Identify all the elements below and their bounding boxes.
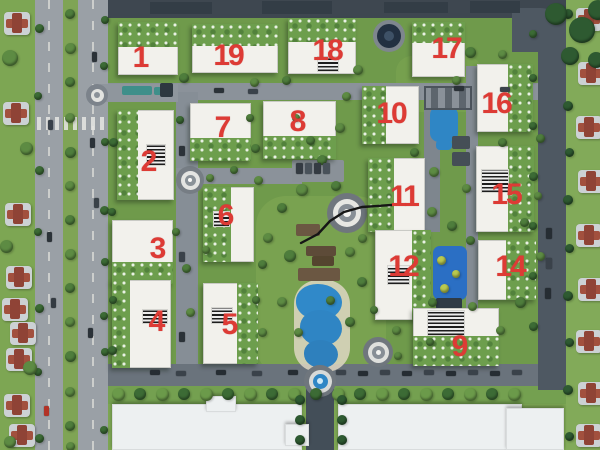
- car: [288, 370, 298, 375]
- tree: [254, 176, 263, 185]
- tree: [508, 388, 521, 401]
- tree: [101, 138, 109, 146]
- tree: [563, 291, 573, 301]
- car: [92, 52, 97, 62]
- tree: [294, 328, 303, 337]
- tree: [35, 304, 44, 313]
- tree: [452, 76, 461, 85]
- main-pool: [304, 340, 338, 368]
- villa: [578, 278, 600, 301]
- tree: [520, 218, 529, 227]
- tree: [65, 147, 76, 158]
- north-strip-building-shadow: [384, 2, 448, 13]
- building-label-6: 6: [218, 199, 233, 233]
- sports-court-grid: [424, 86, 472, 110]
- tree: [263, 233, 273, 243]
- car: [51, 298, 56, 308]
- tree: [354, 388, 366, 400]
- tree: [394, 352, 402, 360]
- tree: [536, 134, 545, 143]
- villa: [5, 203, 31, 226]
- car: [179, 146, 185, 156]
- tree: [246, 114, 254, 122]
- tree: [23, 361, 37, 375]
- tree: [230, 166, 238, 174]
- car: [468, 370, 478, 375]
- building-label-19: 19: [213, 39, 242, 73]
- tree: [186, 308, 195, 317]
- tree: [306, 136, 315, 145]
- tree: [100, 312, 108, 320]
- tree: [35, 434, 44, 443]
- tree: [252, 296, 260, 304]
- north-amenity-pool: [436, 140, 452, 150]
- tree: [353, 65, 363, 75]
- villa: [576, 224, 600, 247]
- tree: [172, 228, 180, 236]
- car: [216, 370, 226, 375]
- car: [512, 370, 522, 375]
- villa: [576, 330, 600, 353]
- tree: [342, 92, 351, 101]
- tree: [462, 184, 471, 193]
- tree: [529, 122, 537, 130]
- tree: [561, 47, 579, 65]
- tree: [563, 101, 573, 111]
- tree: [565, 244, 574, 253]
- tree: [569, 17, 595, 43]
- tree: [427, 207, 437, 217]
- tree: [536, 252, 545, 261]
- tree: [109, 138, 118, 147]
- tree: [101, 16, 109, 24]
- tree: [112, 388, 125, 401]
- lane-marking: [92, 0, 94, 450]
- tree: [65, 421, 75, 431]
- tree: [284, 250, 296, 262]
- tree: [100, 62, 108, 70]
- north-strip-building-shadow: [150, 2, 212, 14]
- villa: [578, 170, 600, 193]
- building-1-roof-garden: [118, 22, 178, 47]
- car: [248, 89, 258, 94]
- car: [296, 163, 303, 174]
- tree: [65, 43, 76, 54]
- tree: [65, 317, 75, 327]
- pergola: [306, 246, 336, 256]
- tree: [335, 123, 345, 133]
- south-fountain: [317, 378, 323, 384]
- tree: [529, 222, 537, 230]
- tree: [442, 388, 454, 400]
- pool-deck-pergola: [298, 268, 340, 281]
- tree: [466, 236, 475, 245]
- tree: [179, 73, 189, 83]
- tree: [65, 215, 75, 225]
- pool-hut: [312, 256, 334, 266]
- tree: [465, 47, 476, 58]
- tree: [565, 432, 574, 441]
- palm-tree: [452, 270, 460, 278]
- tree: [464, 388, 477, 401]
- north-strip-building-shadow: [262, 1, 332, 14]
- car: [47, 232, 52, 242]
- tree: [545, 3, 567, 25]
- car: [380, 370, 390, 375]
- building-label-1: 1: [133, 41, 148, 75]
- building-label-4: 4: [149, 305, 164, 339]
- tree: [251, 144, 260, 153]
- tree: [310, 388, 322, 400]
- tree: [563, 195, 573, 205]
- villa: [3, 102, 29, 125]
- car: [446, 371, 456, 376]
- tree: [337, 395, 347, 405]
- building-label-16: 16: [481, 87, 510, 121]
- tree: [65, 283, 75, 293]
- car: [402, 371, 412, 376]
- building-1-footprint: [118, 22, 178, 75]
- tree: [108, 346, 117, 355]
- tree: [34, 228, 42, 236]
- tree: [35, 24, 44, 33]
- tree: [250, 78, 259, 87]
- building-label-17: 17: [431, 32, 460, 66]
- tree: [534, 192, 542, 200]
- tree: [202, 246, 210, 254]
- tree: [392, 326, 401, 335]
- tree: [295, 415, 305, 425]
- building-label-9: 9: [452, 330, 467, 364]
- tree: [565, 338, 574, 347]
- tree: [529, 172, 538, 181]
- tree: [178, 388, 190, 400]
- tree: [515, 297, 526, 308]
- tree: [529, 322, 538, 331]
- car: [176, 371, 186, 376]
- villa: [576, 116, 600, 139]
- car: [150, 370, 160, 375]
- car: [252, 371, 262, 376]
- tree: [588, 52, 600, 68]
- entrance-gate: [160, 83, 173, 97]
- car: [358, 371, 368, 376]
- villa: [4, 394, 30, 417]
- car: [94, 198, 99, 208]
- entrance-water-feature: [122, 86, 152, 95]
- tree: [65, 181, 75, 191]
- tree: [398, 388, 410, 400]
- lane-marking: [48, 0, 50, 450]
- tree: [337, 435, 347, 445]
- tree: [65, 113, 75, 123]
- villa: [6, 266, 32, 289]
- car: [179, 332, 185, 342]
- building-label-5: 5: [222, 308, 237, 342]
- tree: [244, 388, 257, 401]
- tree: [134, 388, 146, 400]
- tree: [206, 174, 214, 182]
- tree: [565, 148, 574, 157]
- southeast-roundabout: [376, 350, 381, 355]
- car: [546, 258, 552, 269]
- tree: [4, 436, 16, 448]
- tree: [65, 387, 75, 397]
- tree: [563, 385, 573, 395]
- car: [44, 406, 49, 416]
- tree: [410, 148, 419, 157]
- car: [48, 120, 53, 130]
- tree: [295, 395, 305, 405]
- building-label-7: 7: [215, 111, 230, 145]
- building-label-10: 10: [376, 97, 405, 131]
- tree: [370, 306, 378, 314]
- villa: [2, 298, 28, 321]
- tree: [277, 297, 287, 307]
- car: [214, 88, 224, 93]
- tree: [277, 203, 287, 213]
- palm-tree: [437, 256, 446, 265]
- tree: [337, 415, 347, 425]
- car: [454, 86, 464, 91]
- tree: [529, 30, 537, 38]
- tree: [100, 426, 108, 434]
- tree: [258, 260, 267, 269]
- cabana: [452, 136, 470, 149]
- car: [305, 163, 312, 174]
- building-label-15: 15: [491, 178, 520, 212]
- tree: [282, 76, 291, 85]
- building-4-roof-garden: [112, 280, 130, 368]
- tree: [426, 338, 434, 346]
- pergola: [296, 224, 320, 236]
- car: [336, 370, 346, 375]
- tree: [35, 166, 44, 175]
- tree: [0, 240, 13, 253]
- tree: [296, 184, 308, 196]
- tree: [468, 302, 477, 311]
- tree: [447, 221, 457, 231]
- car: [179, 252, 185, 262]
- tree: [101, 258, 109, 266]
- tree: [498, 50, 507, 59]
- north-strip-building-shadow: [470, 1, 520, 13]
- tree: [156, 388, 169, 401]
- tree: [529, 272, 537, 280]
- central-plaza-fountain: [343, 209, 351, 217]
- south-neighbor-rooftop: [338, 404, 522, 450]
- building-label-8: 8: [290, 105, 305, 139]
- east-amenity-pool: [433, 246, 467, 300]
- south-neighbor-rooftop: [506, 408, 564, 450]
- tree: [200, 388, 213, 401]
- building-label-3: 3: [150, 232, 165, 266]
- tree: [295, 435, 305, 445]
- tree: [429, 167, 439, 177]
- tree: [65, 351, 76, 362]
- tree: [34, 92, 42, 100]
- tree: [108, 208, 116, 216]
- building-label-18: 18: [312, 34, 341, 68]
- tree: [182, 264, 191, 273]
- tree: [222, 388, 234, 400]
- tree: [20, 142, 33, 155]
- tree: [486, 388, 498, 400]
- car: [546, 228, 552, 239]
- tree: [498, 138, 507, 147]
- tree: [326, 296, 335, 305]
- building-label-12: 12: [388, 250, 417, 284]
- west-fountain: [188, 178, 192, 182]
- north-pond: [384, 31, 394, 41]
- compound-east-road: [538, 18, 566, 390]
- tree: [66, 442, 75, 450]
- tree: [176, 116, 184, 124]
- car: [323, 163, 330, 174]
- building-label-14: 14: [495, 250, 524, 284]
- palm-tree: [440, 284, 449, 293]
- tree: [266, 388, 278, 400]
- tree: [420, 388, 433, 401]
- tree: [331, 181, 341, 191]
- tree: [109, 296, 117, 304]
- cabana: [452, 152, 470, 166]
- tree: [345, 247, 355, 257]
- car: [314, 163, 321, 174]
- car: [88, 328, 93, 338]
- villa: [10, 322, 36, 345]
- building-label-11: 11: [390, 180, 418, 214]
- tree: [65, 249, 76, 260]
- car: [490, 371, 500, 376]
- car: [545, 288, 551, 299]
- boulevard-median: [63, 0, 78, 450]
- building-2-roof-garden: [117, 110, 138, 200]
- villa: [4, 12, 30, 35]
- tree: [496, 326, 505, 335]
- car: [424, 370, 434, 375]
- tree: [428, 298, 437, 307]
- entrance-circle: [94, 92, 100, 98]
- tree: [65, 9, 75, 19]
- tree: [358, 234, 367, 243]
- tree: [2, 50, 18, 66]
- villa: [576, 424, 600, 447]
- tree: [357, 277, 367, 287]
- villa: [578, 382, 600, 405]
- tree: [65, 77, 75, 87]
- car: [90, 138, 95, 148]
- tree: [258, 328, 267, 337]
- masterplan-canvas: 119181716781021115631214459: [0, 0, 600, 450]
- tree: [345, 317, 355, 327]
- tree: [529, 74, 537, 82]
- tree: [376, 388, 389, 401]
- building-label-2: 2: [141, 145, 156, 179]
- main-pool-deck: [294, 280, 350, 372]
